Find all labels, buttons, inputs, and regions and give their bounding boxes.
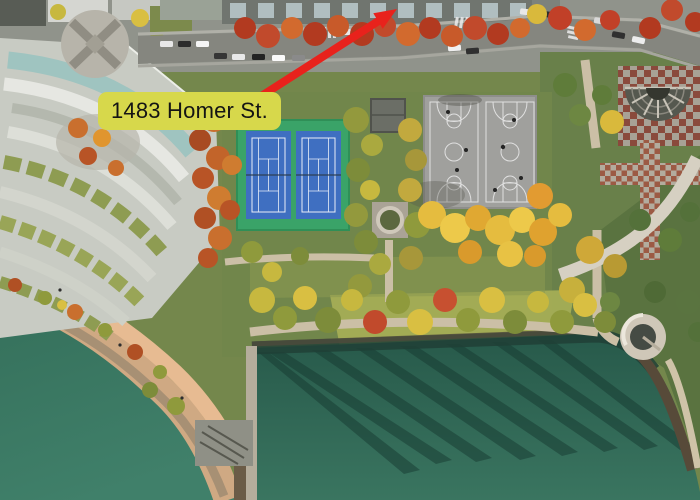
fountain [372,202,408,238]
tennis-court-2 [296,131,341,219]
basketball-courts [405,94,536,209]
circular-monument [620,314,666,360]
tennis-court-1 [246,131,291,219]
address-label: 1483 Homer St. [98,92,281,130]
aerial-photo [0,0,700,500]
screenshot-root: 1483 Homer St. [0,0,700,500]
tennis-courts [237,120,349,230]
